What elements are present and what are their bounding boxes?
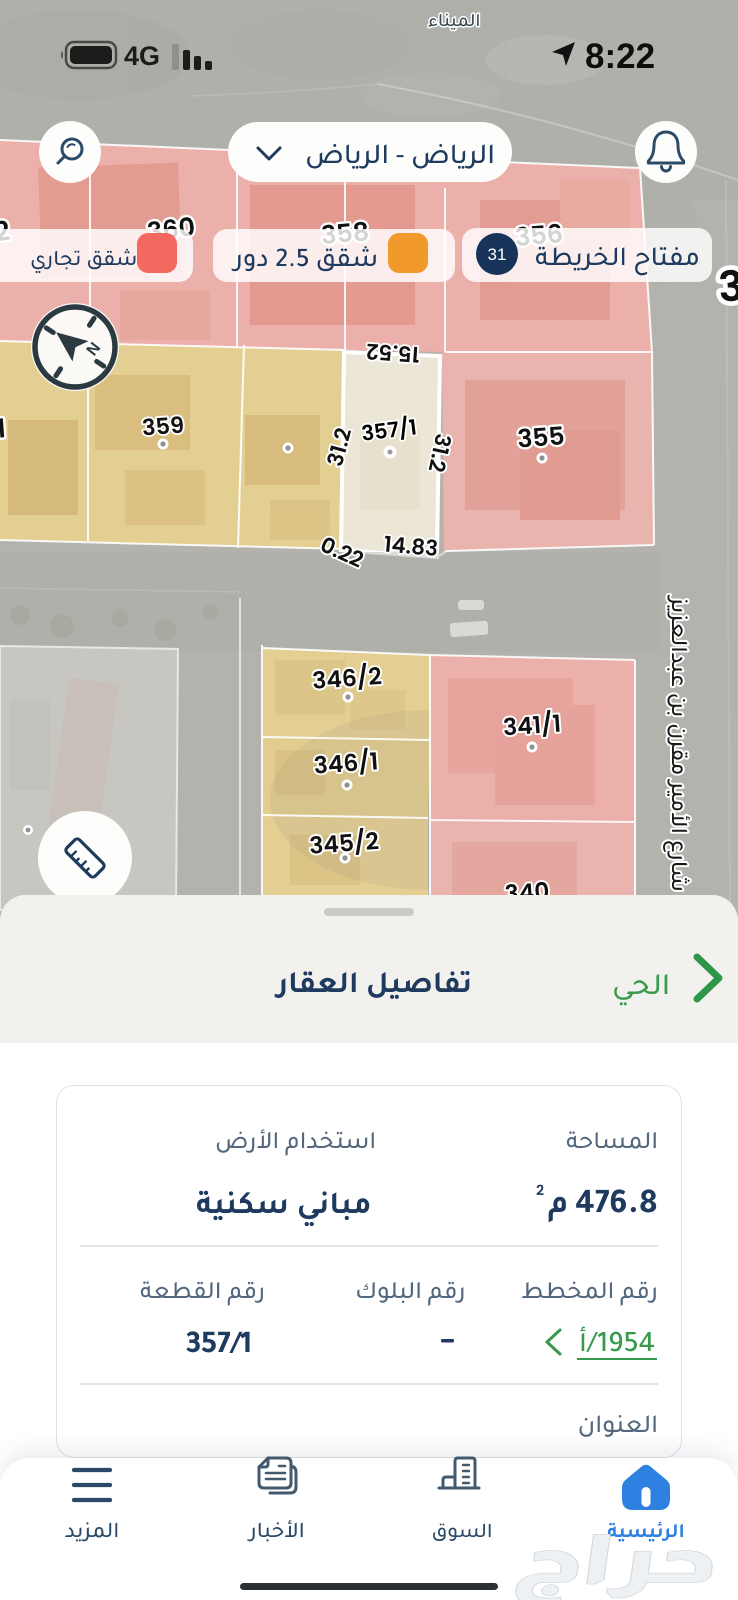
svg-text:8:22: 8:22 — [585, 37, 655, 76]
svg-text:31: 31 — [488, 245, 507, 264]
svg-text:4G: 4G — [124, 41, 160, 71]
